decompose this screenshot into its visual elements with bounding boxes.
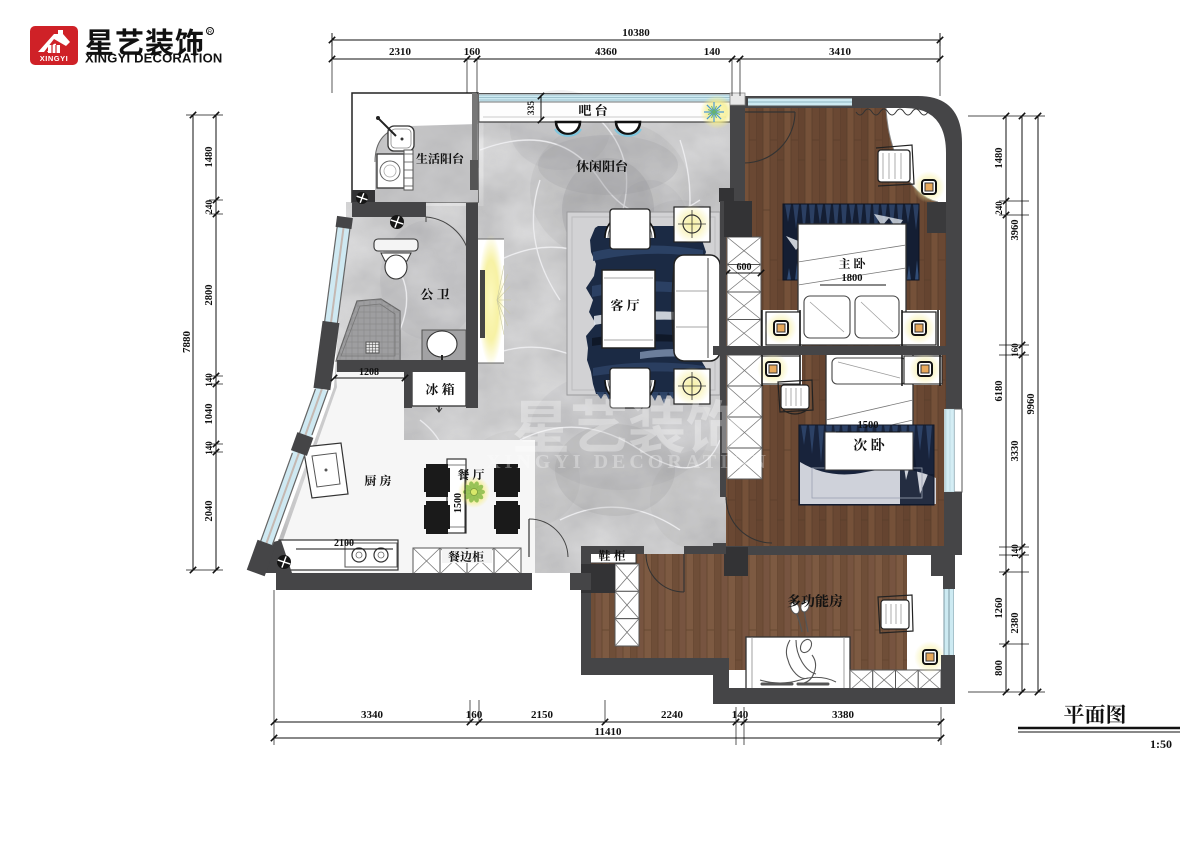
svg-text:600: 600 xyxy=(737,262,752,273)
svg-text:1480: 1480 xyxy=(204,147,215,168)
svg-text:XINGYI DECORATION: XINGYI DECORATION xyxy=(486,451,770,473)
svg-text:3340: 3340 xyxy=(361,709,384,721)
svg-text:800: 800 xyxy=(994,660,1005,676)
svg-text:2800: 2800 xyxy=(204,285,215,306)
svg-text:240: 240 xyxy=(205,200,215,215)
svg-text:7880: 7880 xyxy=(181,331,193,354)
svg-text:160: 160 xyxy=(464,46,481,58)
svg-text:9960: 9960 xyxy=(1026,394,1037,415)
svg-text:140: 140 xyxy=(204,373,214,387)
svg-text:6180: 6180 xyxy=(994,381,1005,402)
svg-text:1480: 1480 xyxy=(994,148,1005,169)
svg-text:240: 240 xyxy=(994,201,1004,215)
svg-text:2380: 2380 xyxy=(1010,613,1021,634)
svg-text:1500: 1500 xyxy=(453,493,464,513)
svg-text:2040: 2040 xyxy=(204,501,215,522)
svg-text:2150: 2150 xyxy=(531,709,554,721)
svg-text:1260: 1260 xyxy=(994,598,1005,619)
svg-text:10380: 10380 xyxy=(622,27,650,39)
svg-text:140: 140 xyxy=(732,709,749,721)
svg-text:140: 140 xyxy=(204,441,214,455)
svg-text:1040: 1040 xyxy=(204,404,215,425)
svg-text:335: 335 xyxy=(527,101,537,116)
svg-text:3960: 3960 xyxy=(1010,220,1021,241)
svg-text:1:50: 1:50 xyxy=(1150,737,1172,751)
svg-text:3410: 3410 xyxy=(829,46,852,58)
svg-text:XINGYI DECORATION: XINGYI DECORATION xyxy=(85,51,223,66)
svg-text:140: 140 xyxy=(704,46,721,58)
svg-text:140: 140 xyxy=(1010,544,1020,558)
svg-text:1800: 1800 xyxy=(842,273,863,284)
svg-text:2100: 2100 xyxy=(334,538,354,549)
svg-text:11410: 11410 xyxy=(595,726,622,738)
svg-text:XINGYI: XINGYI xyxy=(40,54,68,63)
svg-text:3380: 3380 xyxy=(832,709,855,721)
svg-text:1500: 1500 xyxy=(858,420,879,431)
svg-text:2240: 2240 xyxy=(661,709,684,721)
svg-text:3330: 3330 xyxy=(1010,441,1021,462)
svg-text:4360: 4360 xyxy=(595,46,618,58)
svg-text:160: 160 xyxy=(466,709,483,721)
svg-text:2310: 2310 xyxy=(389,46,412,58)
svg-text:1208: 1208 xyxy=(359,367,379,378)
svg-text:R: R xyxy=(208,30,212,36)
